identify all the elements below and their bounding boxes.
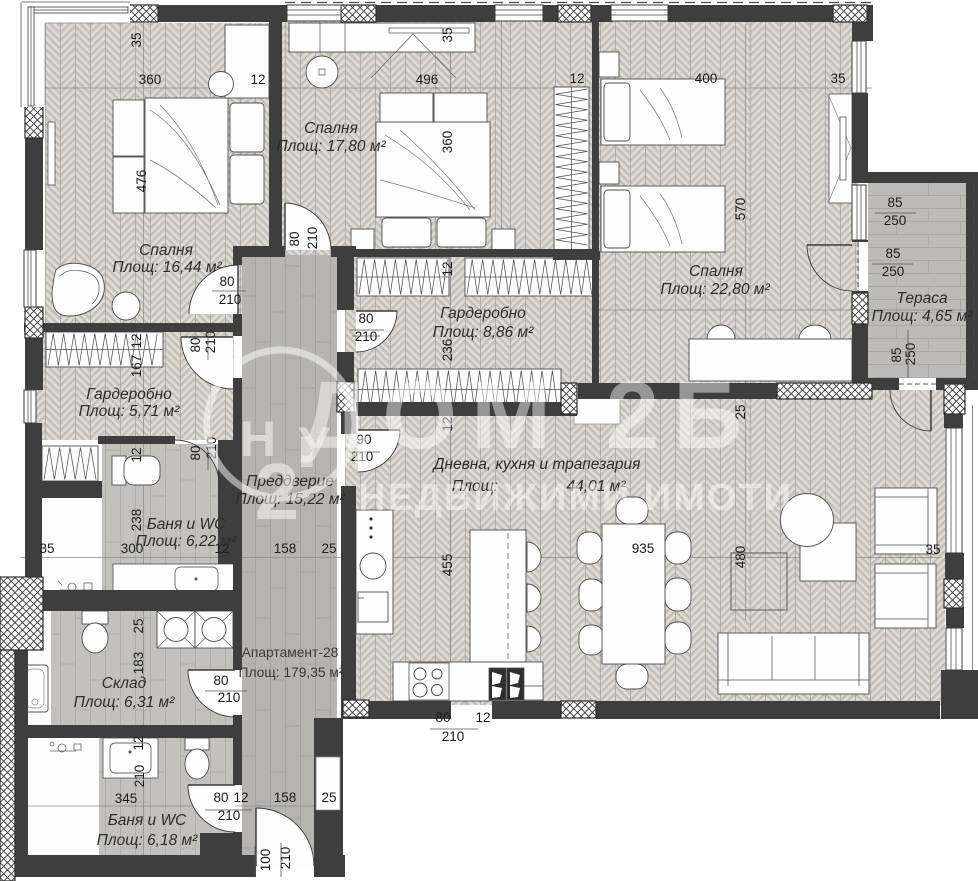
svg-text:236: 236 bbox=[440, 339, 455, 362]
svg-text:Площ: 4,65 м²: Площ: 4,65 м² bbox=[872, 308, 973, 325]
svg-text:400: 400 bbox=[695, 71, 718, 86]
svg-text:25: 25 bbox=[131, 618, 146, 633]
svg-text:80: 80 bbox=[188, 337, 203, 352]
svg-text:12: 12 bbox=[129, 447, 144, 462]
svg-text:Площ: 6,18 м²: Площ: 6,18 м² bbox=[97, 832, 198, 849]
svg-text:455: 455 bbox=[440, 554, 455, 577]
svg-text:85: 85 bbox=[889, 347, 904, 362]
svg-text:Площ: 17,80 м²: Площ: 17,80 м² bbox=[276, 138, 386, 155]
svg-text:80: 80 bbox=[219, 274, 234, 289]
svg-text:496: 496 bbox=[416, 72, 439, 87]
svg-text:250: 250 bbox=[884, 213, 907, 228]
svg-text:Гардеробно: Гардеробно bbox=[440, 305, 526, 322]
svg-text:Спалня: Спалня bbox=[304, 120, 358, 137]
svg-text:Площ: 8,86 м²: Площ: 8,86 м² bbox=[433, 324, 534, 341]
svg-text:Склад: Склад bbox=[102, 675, 147, 692]
svg-text:80: 80 bbox=[358, 311, 373, 326]
svg-text:12: 12 bbox=[131, 735, 146, 750]
svg-text:80: 80 bbox=[213, 673, 228, 688]
svg-text:100: 100 bbox=[258, 849, 273, 872]
svg-text:85: 85 bbox=[885, 246, 900, 261]
svg-text:35: 35 bbox=[129, 32, 144, 47]
svg-text:35: 35 bbox=[925, 542, 940, 557]
svg-text:360: 360 bbox=[440, 131, 455, 154]
svg-text:12: 12 bbox=[129, 333, 144, 348]
svg-text:935: 935 bbox=[632, 541, 655, 556]
svg-text:Площ: 5,71 м²: Площ: 5,71 м² bbox=[79, 403, 180, 420]
svg-text:Баня и WC: Баня и WC bbox=[147, 516, 226, 533]
svg-text:80: 80 bbox=[213, 790, 228, 805]
svg-text:25: 25 bbox=[321, 790, 336, 805]
svg-text:80: 80 bbox=[435, 710, 450, 725]
svg-text:210: 210 bbox=[132, 765, 147, 788]
svg-text:210: 210 bbox=[219, 292, 242, 307]
svg-text:167: 167 bbox=[129, 355, 144, 378]
svg-text:210: 210 bbox=[355, 329, 378, 344]
svg-text:12: 12 bbox=[475, 710, 490, 725]
svg-text:Баня и WC: Баня и WC bbox=[108, 812, 187, 829]
svg-text:Площ: 22,80 м²: Площ: 22,80 м² bbox=[660, 281, 770, 298]
svg-text:360: 360 bbox=[139, 72, 162, 87]
svg-text:НЕДВИЖИМИ ИМОТИ: НЕДВИЖИМИ ИМОТИ bbox=[358, 477, 793, 519]
svg-text:Тераса: Тераса bbox=[896, 290, 948, 307]
svg-text:35: 35 bbox=[440, 27, 455, 42]
svg-text:12: 12 bbox=[233, 790, 248, 805]
svg-text:210: 210 bbox=[203, 331, 218, 354]
svg-text:Площ: 179,35 м²: Площ: 179,35 м² bbox=[239, 665, 344, 680]
svg-text:Площ: 16,44 м²: Площ: 16,44 м² bbox=[112, 259, 222, 276]
svg-text:80: 80 bbox=[188, 445, 203, 460]
svg-text:250: 250 bbox=[882, 264, 905, 279]
svg-text:Апартамент-28: Апартамент-28 bbox=[242, 645, 339, 660]
svg-text:183: 183 bbox=[131, 652, 146, 675]
svg-text:210: 210 bbox=[278, 847, 293, 870]
svg-text:80: 80 bbox=[287, 231, 302, 246]
svg-text:Площ: 6,22 м²: Площ: 6,22 м² bbox=[136, 533, 237, 550]
svg-text:25: 25 bbox=[321, 541, 336, 556]
svg-text:12: 12 bbox=[250, 72, 265, 87]
svg-text:35: 35 bbox=[39, 541, 54, 556]
svg-text:35: 35 bbox=[830, 71, 845, 86]
svg-text:12: 12 bbox=[569, 71, 584, 86]
svg-text:Площ: 6,31 м²: Площ: 6,31 м² bbox=[74, 694, 175, 711]
svg-text:158: 158 bbox=[274, 790, 297, 805]
svg-text:345: 345 bbox=[115, 791, 138, 806]
svg-text:Гардеробно: Гардеробно bbox=[86, 386, 172, 403]
svg-text:210: 210 bbox=[218, 690, 241, 705]
svg-text:Спалня: Спалня bbox=[139, 242, 193, 259]
svg-text:476: 476 bbox=[134, 170, 149, 193]
svg-text:ДОМ 2Б: ДОМ 2Б bbox=[300, 362, 756, 469]
svg-text:85: 85 bbox=[887, 195, 902, 210]
svg-text:210: 210 bbox=[305, 227, 320, 250]
svg-text:238: 238 bbox=[129, 509, 144, 532]
svg-text:158: 158 bbox=[274, 541, 297, 556]
svg-text:480: 480 bbox=[733, 546, 748, 569]
svg-text:Спалня: Спалня bbox=[689, 263, 743, 280]
svg-text:Н: Н bbox=[240, 411, 276, 467]
svg-text:210: 210 bbox=[442, 729, 465, 744]
svg-text:12: 12 bbox=[440, 261, 455, 276]
svg-text:250: 250 bbox=[903, 343, 918, 366]
svg-text:570: 570 bbox=[733, 198, 748, 221]
